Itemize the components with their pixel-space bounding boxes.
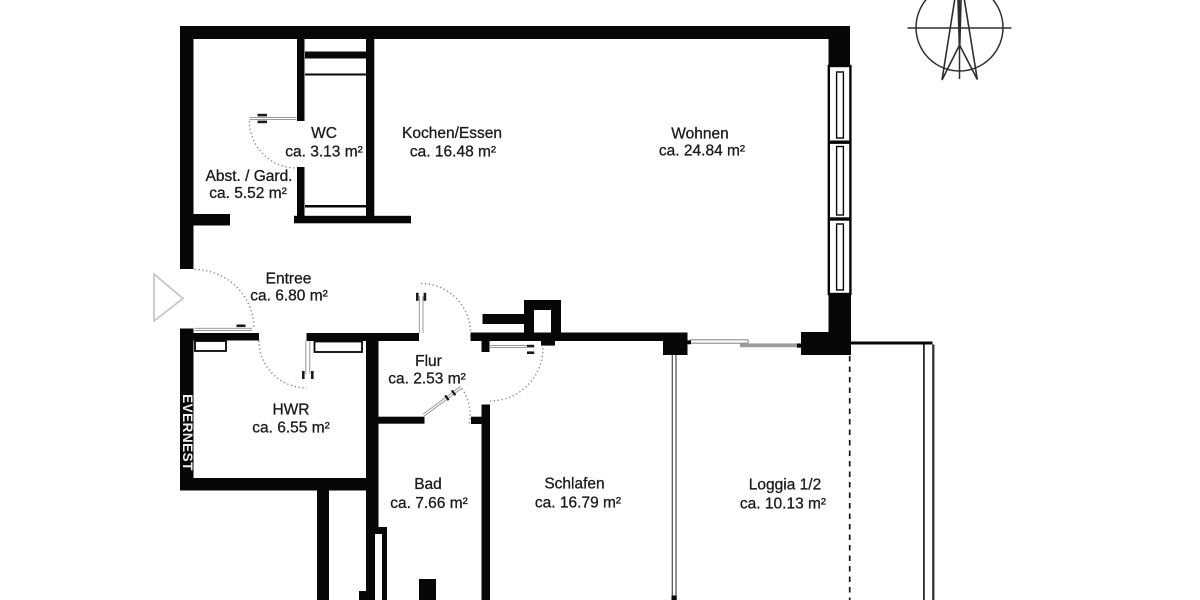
svg-text:Loggia 1/2: Loggia 1/2 [749, 477, 821, 494]
svg-text:ca. 6.80 m²: ca. 6.80 m² [250, 288, 328, 305]
svg-text:Schlafen: Schlafen [544, 475, 604, 492]
svg-text:ca. 6.55 m²: ca. 6.55 m² [252, 420, 330, 437]
svg-text:ca. 16.48 m²: ca. 16.48 m² [410, 144, 496, 161]
svg-text:ca. 3.13 m²: ca. 3.13 m² [285, 144, 363, 161]
svg-text:HWR: HWR [272, 402, 309, 419]
svg-text:ca. 16.79 m²: ca. 16.79 m² [535, 494, 621, 511]
svg-text:ca. 10.13 m²: ca. 10.13 m² [740, 496, 826, 513]
svg-text:Abst. / Gard.: Abst. / Gard. [205, 168, 292, 185]
svg-text:Bad: Bad [414, 476, 442, 493]
svg-text:Flur: Flur [415, 353, 442, 370]
svg-text:ca. 5.52 m²: ca. 5.52 m² [209, 185, 287, 202]
svg-text:Kochen/Essen: Kochen/Essen [402, 125, 502, 142]
svg-text:ca. 2.53 m²: ca. 2.53 m² [388, 371, 466, 388]
svg-text:WC: WC [311, 125, 337, 142]
svg-text:ca. 7.66 m²: ca. 7.66 m² [390, 495, 468, 512]
svg-text:Entree: Entree [266, 271, 312, 288]
svg-text:ca. 24.84 m²: ca. 24.84 m² [659, 143, 745, 160]
svg-text:Wohnen: Wohnen [671, 125, 728, 142]
svg-text:EVERNEST: EVERNEST [180, 394, 195, 471]
